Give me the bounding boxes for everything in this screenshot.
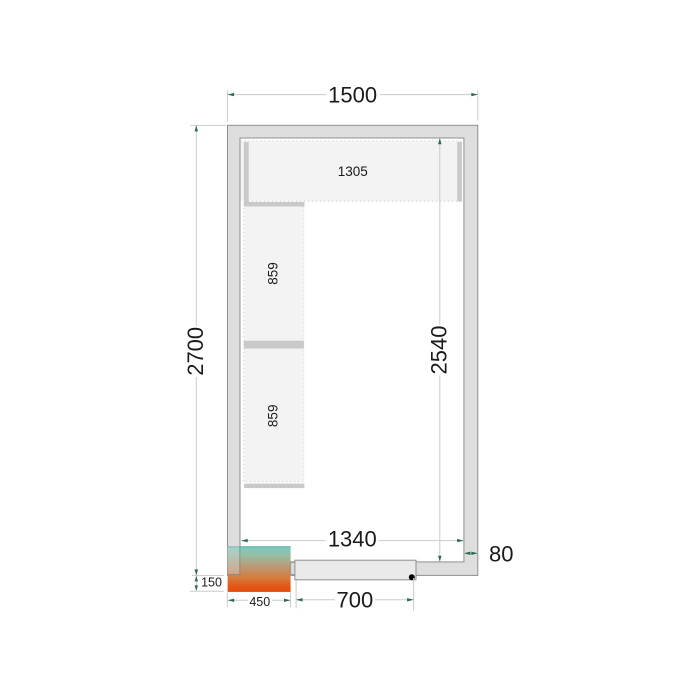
svg-text:1305: 1305 xyxy=(338,164,368,179)
svg-text:450: 450 xyxy=(249,595,270,609)
svg-text:700: 700 xyxy=(337,588,374,613)
svg-text:859: 859 xyxy=(266,262,281,285)
svg-text:2700: 2700 xyxy=(183,327,208,376)
svg-text:1500: 1500 xyxy=(328,82,377,107)
svg-text:150: 150 xyxy=(201,575,222,589)
svg-text:2540: 2540 xyxy=(427,326,452,375)
svg-text:1340: 1340 xyxy=(328,526,377,551)
svg-text:859: 859 xyxy=(266,405,281,428)
svg-text:80: 80 xyxy=(489,541,513,566)
